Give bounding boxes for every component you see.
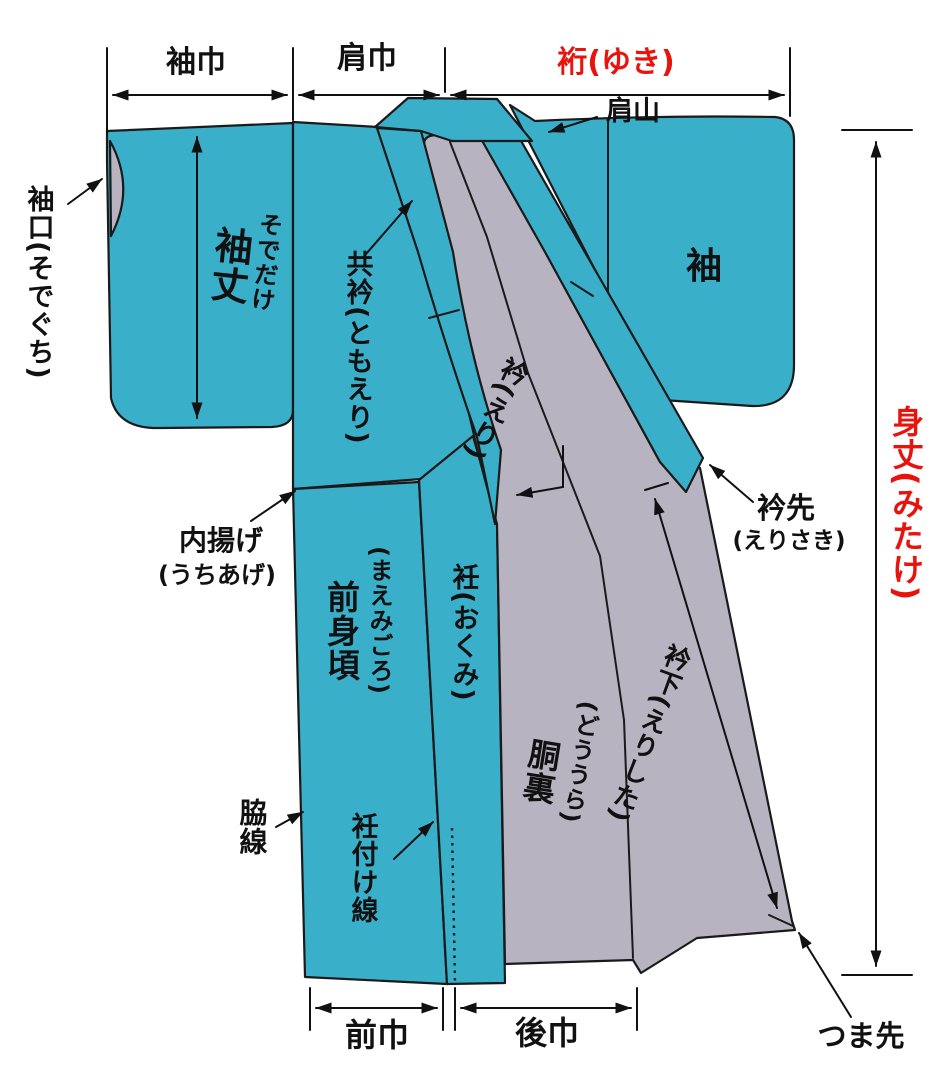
label-sode: 袖 bbox=[686, 246, 722, 287]
label-erisaki-kanji: 衿先 bbox=[757, 491, 815, 525]
label-maemigoro-kana: (まえみごろ) bbox=[365, 546, 393, 695]
arrow-sodeguchi bbox=[68, 179, 102, 204]
label-katayama: 肩山 bbox=[606, 95, 660, 127]
label-erisaki-kana: (えりさき) bbox=[732, 528, 845, 554]
label-mitake: 身丈(みたけ) bbox=[887, 405, 925, 601]
label-sodetake-kanji: 袖丈 bbox=[202, 224, 254, 306]
label-okumitsukesen: 衽付け線 bbox=[347, 812, 379, 924]
label-wakisen: 脇線 bbox=[236, 798, 269, 856]
arrow-erisaki bbox=[710, 465, 753, 502]
kimono-diagram-canvas: 袖巾 肩巾 裄(ゆき) 肩山 袖 衿先 (えりさき) 内揚げ (うちあげ) 前巾… bbox=[0, 0, 951, 1080]
label-okumi: 衽(おくみ) bbox=[448, 563, 480, 702]
label-uchiage-kanji: 内揚げ bbox=[179, 524, 264, 557]
label-tomoeri: 共衿(ともえり) bbox=[342, 250, 374, 445]
label-uchiage-kana: (うちあげ) bbox=[158, 561, 276, 589]
label-sode-haba: 袖巾 bbox=[166, 45, 226, 80]
label-yuki: 裄(ゆき) bbox=[556, 45, 674, 80]
kimono-parts-diagram: 袖巾 肩巾 裄(ゆき) 肩山 袖 衿先 (えりさき) 内揚げ (うちあげ) 前巾… bbox=[0, 0, 951, 1080]
label-sodeguchi: 袖口(そでぐち) bbox=[23, 185, 55, 380]
label-mae-haba: 前巾 bbox=[345, 1016, 409, 1054]
label-ushiro-haba: 後巾 bbox=[515, 1014, 579, 1052]
arrow-uchiage bbox=[251, 491, 295, 521]
arrow-wakisen bbox=[276, 812, 303, 827]
label-tsumasaki: つま先 bbox=[817, 1019, 904, 1053]
label-maemigoro-kanji: 前身頃 bbox=[322, 580, 361, 682]
label-kata-haba: 肩巾 bbox=[337, 41, 397, 76]
